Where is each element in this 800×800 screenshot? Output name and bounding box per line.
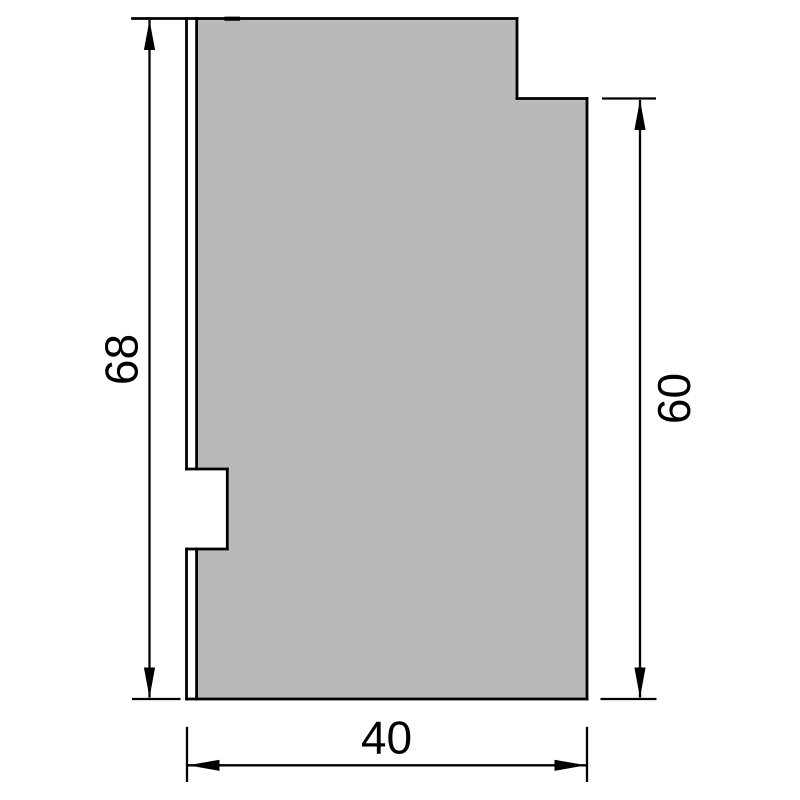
- svg-text:68: 68: [96, 334, 148, 385]
- svg-text:60: 60: [648, 373, 700, 424]
- svg-text:40: 40: [361, 712, 412, 764]
